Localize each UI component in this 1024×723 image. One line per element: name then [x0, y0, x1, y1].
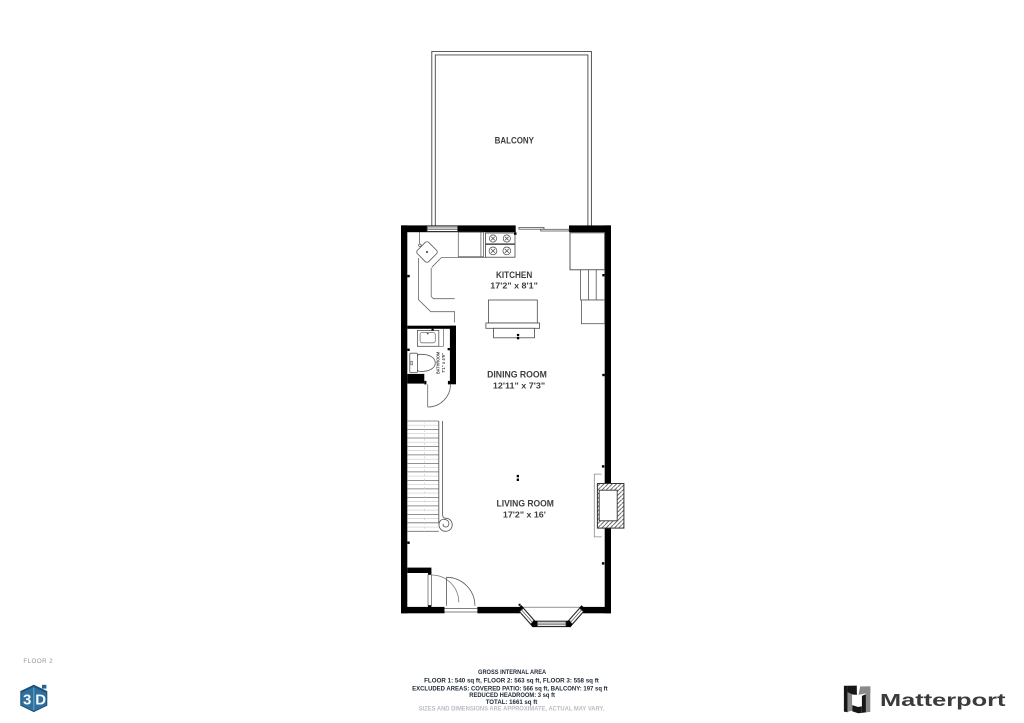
svg-text:17'2" x 16': 17'2" x 16'	[503, 509, 546, 519]
svg-text:Matterport: Matterport	[880, 690, 1006, 710]
svg-text:FLOOR 2: FLOOR 2	[23, 658, 53, 665]
svg-text:7'1" x 4'9": 7'1" x 4'9"	[441, 353, 446, 373]
svg-text:LIVING ROOM: LIVING ROOM	[497, 498, 555, 508]
svg-text:3: 3	[23, 692, 31, 709]
svg-text:GROSS INTERNAL AREA: GROSS INTERNAL AREA	[478, 669, 546, 676]
svg-text:D: D	[35, 692, 46, 709]
svg-text:FLOOR 1: 540 sq ft, FLOOR 2: 5: FLOOR 1: 540 sq ft, FLOOR 2: 563 sq ft, …	[424, 678, 600, 685]
svg-text:BALCONY: BALCONY	[495, 136, 534, 146]
svg-text:12'11" x 7'3": 12'11" x 7'3"	[493, 380, 545, 390]
svg-text:17'2" x 8'1": 17'2" x 8'1"	[490, 281, 538, 291]
svg-text:SIZES AND DIMENSIONS ARE APPRO: SIZES AND DIMENSIONS ARE APPROXIMATE, AC…	[419, 705, 605, 712]
svg-text:DINING ROOM: DINING ROOM	[487, 369, 547, 379]
svg-text:BATHROOM: BATHROOM	[435, 352, 440, 374]
svg-text:KITCHEN: KITCHEN	[496, 270, 533, 280]
